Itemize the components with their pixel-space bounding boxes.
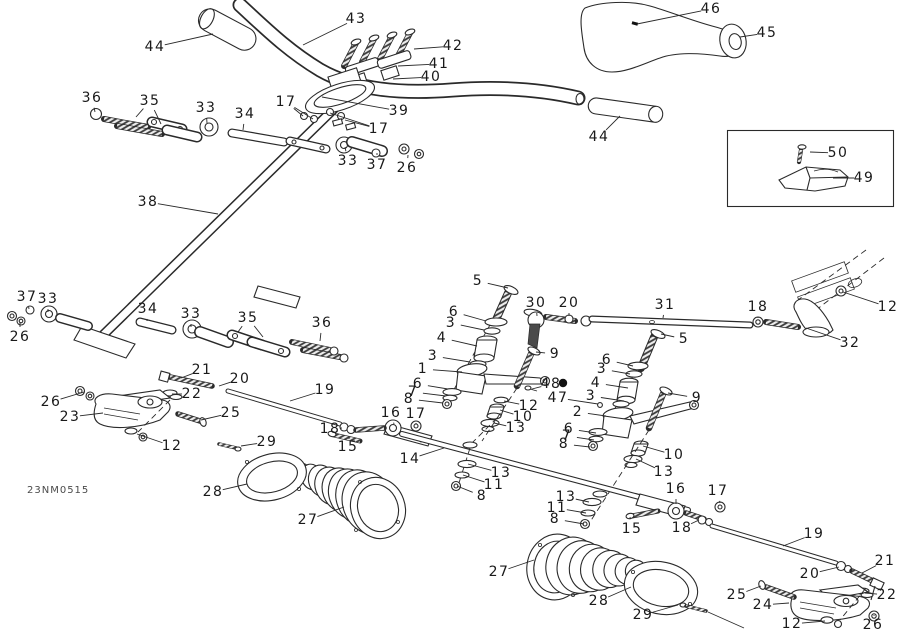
callout-label-37: 37 [17, 289, 38, 305]
washer-17-right [715, 502, 725, 512]
callout-label-46: 46 [701, 1, 722, 17]
callout-label-42: 42 [443, 38, 464, 54]
callout-label-10: 10 [664, 447, 685, 463]
diagram-part-code: 23NM0515 [27, 485, 89, 496]
callout-label-19: 19 [315, 382, 336, 398]
callout-label-29: 29 [633, 607, 654, 623]
callout-label-35: 35 [140, 93, 161, 109]
callout-label-17: 17 [369, 121, 390, 137]
callout-label-3: 3 [446, 315, 456, 331]
callout-label-36: 36 [312, 315, 333, 331]
callout-label-33: 33 [338, 153, 359, 169]
callout-label-1: 1 [418, 361, 428, 377]
callout-label-13: 13 [506, 420, 527, 436]
callout-label-23: 23 [60, 409, 81, 425]
callout-label-25: 25 [727, 587, 748, 603]
callout-label-17: 17 [406, 406, 427, 422]
callout-label-5: 5 [473, 273, 483, 289]
ball-joint-16-right [668, 503, 684, 519]
callout-label-20: 20 [230, 371, 251, 387]
callout-label-26: 26 [10, 329, 31, 345]
boot-screw [219, 444, 241, 451]
callout-label-24: 24 [753, 597, 774, 613]
callout-label-30: 30 [526, 295, 547, 311]
boot-ring [232, 446, 312, 509]
callout-label-40: 40 [421, 69, 442, 85]
handlebar [240, 5, 584, 105]
boot-bellows [292, 461, 414, 546]
callout-label-8: 8 [477, 488, 487, 504]
callout-label-14: 14 [400, 451, 421, 467]
steering-column [74, 99, 344, 358]
callout-label-29: 29 [257, 434, 278, 450]
steering-spindle-arm-1 [456, 362, 550, 394]
callout-label-33: 33 [38, 291, 59, 307]
callout-label-19: 19 [804, 526, 825, 542]
inset-box [728, 131, 894, 207]
callout-label-15: 15 [338, 439, 359, 455]
callout-label-3: 3 [586, 388, 596, 404]
callout-label-15: 15 [622, 521, 643, 537]
callout-label-3: 3 [428, 348, 438, 364]
diagram-canvas: 4344424140391717464544504936353334333726… [0, 0, 900, 631]
callout-label-8: 8 [559, 436, 569, 452]
callout-label-9: 9 [692, 390, 702, 406]
washer-17-left [411, 421, 421, 431]
callout-label-34: 34 [235, 106, 256, 122]
callout-label-12: 12 [782, 616, 803, 631]
left-drag-link [228, 391, 384, 441]
right-steering-arm [794, 299, 833, 337]
callout-label-9: 9 [550, 346, 560, 362]
right-ski-leg [758, 580, 879, 628]
callout-label-45: 45 [757, 25, 778, 41]
lower-tie-rod-linkage [8, 306, 349, 362]
callout-label-17: 17 [276, 94, 297, 110]
callout-label-26: 26 [41, 394, 62, 410]
ball-joint-16-left [385, 420, 401, 436]
callout-label-8: 8 [550, 511, 560, 527]
callout-label-12: 12 [878, 299, 899, 315]
callout-label-5: 5 [679, 331, 689, 347]
callout-label-44: 44 [589, 129, 610, 145]
boot-screw [680, 603, 744, 628]
callout-label-50: 50 [828, 145, 849, 161]
left-ski-leg [76, 371, 213, 441]
callout-label-8: 8 [404, 391, 414, 407]
callout-label-20: 20 [800, 566, 821, 582]
callout-label-20: 20 [559, 295, 580, 311]
callout-label-18: 18 [748, 299, 769, 315]
clamp-screw [798, 145, 806, 162]
callout-label-39: 39 [389, 103, 410, 119]
callout-label-28: 28 [203, 484, 224, 500]
callout-label-27: 27 [298, 512, 319, 528]
callout-label-21: 21 [875, 553, 896, 569]
callout-label-38: 38 [138, 194, 159, 210]
callout-label-16: 16 [666, 481, 687, 497]
callout-label-37: 37 [367, 157, 388, 173]
callout-label-22: 22 [877, 587, 898, 603]
callout-label-13: 13 [654, 464, 675, 480]
callout-label-17: 17 [708, 483, 729, 499]
callout-label-34: 34 [138, 301, 159, 317]
callout-label-21: 21 [192, 362, 213, 378]
rivet-47 [598, 403, 603, 408]
callout-label-2: 2 [573, 404, 583, 420]
callout-label-16: 16 [381, 405, 402, 421]
callout-label-18: 18 [320, 421, 341, 437]
callout-label-31: 31 [655, 297, 676, 313]
callout-label-33: 33 [196, 100, 217, 116]
callout-label-44: 44 [145, 39, 166, 55]
left-boot-assembly [219, 444, 414, 546]
handlebar-grip-rod-right [587, 97, 663, 123]
callout-label-36: 36 [82, 90, 103, 106]
callout-label-12: 12 [162, 438, 183, 454]
grip-pad [581, 2, 749, 72]
callout-label-28: 28 [589, 593, 610, 609]
callout-label-25: 25 [221, 405, 242, 421]
callout-label-32: 32 [840, 335, 861, 351]
callout-label-4: 4 [437, 330, 447, 346]
callout-label-22: 22 [182, 386, 203, 402]
callout-label-33: 33 [181, 306, 202, 322]
callout-label-43: 43 [346, 11, 367, 27]
callout-label-49: 49 [854, 170, 875, 186]
callout-label-35: 35 [238, 310, 259, 326]
callout-label-18: 18 [672, 520, 693, 536]
callout-label-47: 47 [548, 390, 569, 406]
callout-label-27: 27 [489, 564, 510, 580]
callout-label-26: 26 [397, 160, 418, 176]
clamp-half [779, 167, 848, 191]
callout-label-26: 26 [863, 617, 884, 631]
